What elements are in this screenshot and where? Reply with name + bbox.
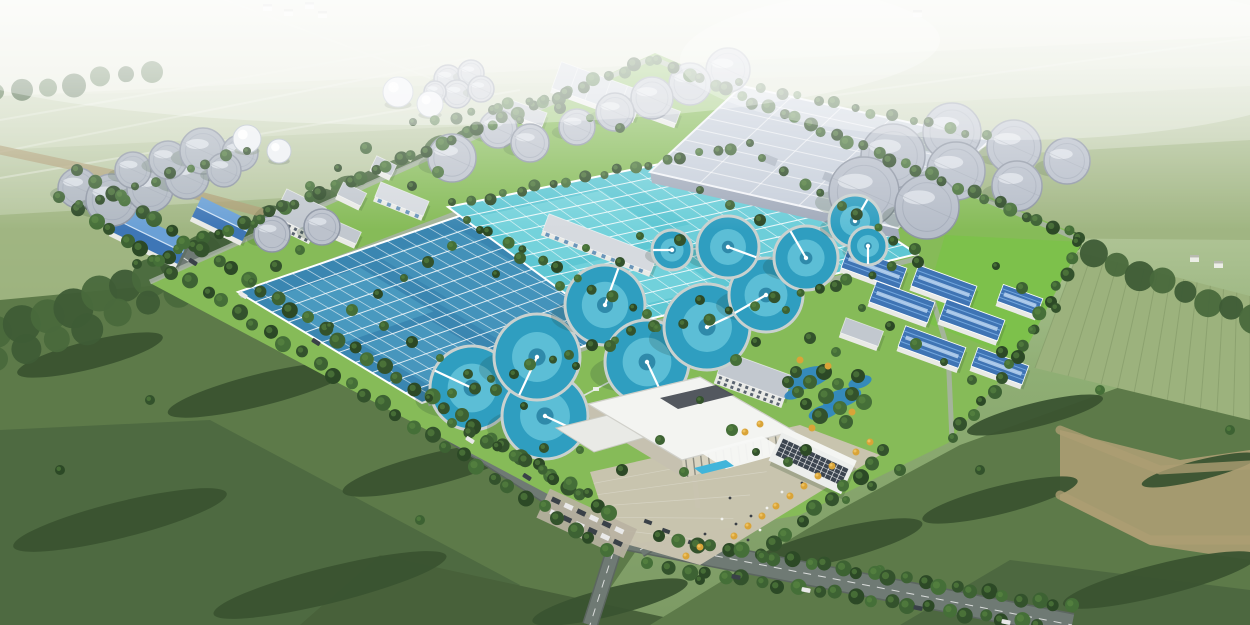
tree-highlight — [993, 263, 997, 267]
tree-highlight — [588, 286, 593, 291]
tree-highlight — [465, 371, 470, 376]
tree-highlight — [351, 343, 356, 348]
yellow-tree-highlight — [816, 474, 819, 477]
tree-highlight — [449, 390, 454, 395]
tree-highlight — [982, 611, 987, 616]
tree-highlight — [870, 273, 874, 277]
tree-highlight — [465, 428, 470, 433]
tree-highlight — [327, 370, 334, 377]
tree-highlight — [570, 525, 577, 532]
person — [747, 539, 750, 542]
tree-highlight — [914, 258, 919, 263]
tree-highlight — [134, 261, 139, 266]
yellow-tree-highlight — [868, 440, 871, 443]
tree-highlight — [575, 276, 579, 280]
tree-highlight — [676, 236, 681, 241]
tree-highlight — [701, 568, 706, 573]
tree-highlight — [459, 449, 465, 455]
tree-highlight — [657, 437, 662, 442]
tree-highlight — [348, 306, 353, 311]
tree-highlight — [409, 423, 415, 429]
tree-highlight — [511, 371, 516, 376]
tree-highlight — [628, 327, 633, 332]
tree-highlight — [858, 396, 865, 403]
tree-highlight — [802, 400, 807, 405]
tree-highlight — [147, 397, 152, 402]
tree-highlight — [379, 360, 386, 367]
tree-highlight — [585, 490, 590, 495]
tree-highlight — [697, 577, 702, 582]
tree-highlight — [573, 363, 577, 367]
tree-highlight — [470, 461, 477, 468]
person — [735, 523, 738, 526]
tree-highlight — [359, 391, 365, 397]
tree-highlight — [272, 262, 277, 267]
tree-highlight — [888, 263, 893, 268]
haze-layer — [0, 0, 1250, 230]
tree-highlight — [1017, 615, 1024, 622]
distant-farm — [1214, 263, 1223, 268]
tree-highlight — [205, 288, 210, 293]
tree-highlight — [839, 481, 844, 486]
tree-highlight — [780, 530, 786, 536]
forest-blob — [1080, 239, 1108, 267]
tree-highlight — [1047, 298, 1052, 303]
tree-highlight — [602, 545, 608, 551]
tree-highlight — [819, 559, 825, 565]
tree-highlight — [793, 581, 800, 588]
tree-highlight — [799, 517, 804, 522]
tree-highlight — [362, 354, 368, 360]
tree-highlight — [732, 356, 737, 361]
tree-highlight — [1034, 308, 1040, 314]
tree-highlight — [752, 303, 757, 308]
tree-highlight — [853, 371, 859, 377]
tree-highlight — [673, 536, 679, 542]
tree-highlight — [184, 275, 191, 282]
tree-highlight — [901, 600, 908, 607]
tree-highlight — [721, 573, 727, 579]
forest-blob — [71, 313, 103, 345]
tree-highlight — [541, 445, 546, 450]
tree-highlight — [520, 246, 524, 250]
tree-highlight — [984, 586, 991, 593]
tree-highlight — [816, 588, 821, 593]
tree-highlight — [327, 323, 331, 327]
tree-highlight — [584, 534, 589, 539]
tree-highlight — [471, 384, 476, 389]
forest-blob — [104, 298, 132, 326]
tree-highlight — [284, 305, 291, 312]
tree-highlight — [834, 380, 839, 385]
tree-highlight — [408, 338, 413, 343]
tree-highlight — [608, 292, 613, 297]
tree-highlight — [851, 591, 858, 598]
tree-highlight — [808, 560, 813, 565]
tree-highlight — [617, 259, 622, 264]
tree-highlight — [814, 410, 821, 417]
tree-highlight — [552, 513, 558, 519]
yellow-tree-highlight — [698, 545, 701, 548]
tree-highlight — [954, 582, 959, 587]
tree-highlight — [216, 295, 222, 301]
tree-highlight — [921, 577, 927, 583]
clarifier-hub — [764, 293, 768, 297]
yellow-tree-highlight — [684, 554, 687, 557]
tree-highlight — [637, 233, 641, 237]
tree-highlight — [575, 490, 580, 495]
tree-highlight — [996, 615, 1002, 621]
tree-highlight — [706, 541, 711, 546]
clarifier-hub — [543, 414, 547, 418]
tree-highlight — [654, 325, 658, 329]
tree-highlight — [249, 279, 253, 283]
tree-highlight — [457, 410, 463, 416]
tree-highlight — [1018, 284, 1023, 289]
tree-highlight — [753, 339, 758, 344]
tree-highlight — [1016, 596, 1022, 602]
tree-highlight — [583, 245, 587, 249]
tree-highlight — [1227, 427, 1232, 432]
tree-highlight — [933, 581, 940, 588]
tree-highlight — [806, 334, 811, 339]
tree-highlight — [277, 339, 284, 346]
tree-highlight — [1052, 282, 1057, 287]
tree-highlight — [482, 437, 488, 443]
tree-highlight — [297, 247, 302, 252]
tree-highlight — [787, 553, 794, 560]
tree-highlight — [977, 467, 982, 472]
yellow-tree — [825, 363, 832, 370]
tree-highlight — [417, 517, 422, 522]
tree-highlight — [784, 378, 789, 383]
tree-highlight — [1063, 270, 1069, 276]
tree-highlight — [520, 493, 527, 500]
tree-highlight — [535, 460, 540, 465]
tree-highlight — [798, 290, 802, 294]
tree-highlight — [504, 239, 509, 244]
yellow-tree-highlight — [774, 504, 777, 507]
tree-highlight — [724, 545, 730, 551]
tree-highlight — [681, 469, 686, 474]
tree-highlight — [216, 257, 221, 262]
tree-highlight — [998, 592, 1003, 597]
yellow-tree-highlight — [802, 484, 805, 487]
yellow-tree — [809, 425, 816, 432]
clarifier-hub — [670, 248, 674, 252]
tree-highlight — [852, 569, 857, 574]
tree-highlight — [664, 563, 670, 569]
tree-highlight — [437, 355, 441, 359]
tree-highlight — [401, 275, 405, 279]
tree-highlight — [870, 568, 876, 574]
tree-highlight — [859, 305, 863, 309]
tree-highlight — [705, 315, 710, 320]
yellow-tree-highlight — [830, 464, 833, 467]
tree-highlight — [1006, 361, 1011, 366]
tree-highlight — [888, 596, 894, 602]
tree-highlight — [557, 283, 562, 288]
tree-highlight — [426, 395, 430, 399]
tree-highlight — [896, 466, 901, 471]
tree-highlight — [759, 553, 764, 558]
tree-highlight — [1097, 387, 1102, 392]
aerial-render: Aerial 3D rendering of a large wastewate… — [0, 0, 1250, 625]
person — [750, 515, 753, 518]
tree-highlight — [196, 244, 203, 251]
tree-highlight — [577, 447, 581, 451]
tree-highlight — [424, 258, 429, 263]
tree-highlight — [134, 243, 141, 250]
tree-highlight — [155, 257, 160, 262]
forest-blob — [1194, 289, 1222, 317]
tree-highlight — [449, 243, 454, 248]
tree-highlight — [332, 335, 339, 342]
tree-highlight — [770, 293, 775, 298]
tree-highlight — [644, 311, 649, 316]
tree-highlight — [540, 257, 545, 262]
treatment-plant-rendering: Aerial 3D rendering of a large wastewate… — [0, 0, 1250, 625]
tree-highlight — [830, 587, 836, 593]
tree-highlight — [842, 275, 847, 280]
tree-highlight — [492, 386, 497, 391]
tree-highlight — [855, 472, 862, 479]
tree-highlight — [785, 459, 790, 464]
tree-highlight — [941, 359, 945, 363]
tree-highlight — [768, 554, 774, 560]
tree-highlight — [630, 305, 634, 309]
tree-highlight — [216, 231, 221, 236]
tree-highlight — [516, 254, 521, 259]
tree-highlight — [511, 452, 516, 457]
yellow-tree-highlight — [760, 514, 763, 517]
tree-highlight — [298, 347, 303, 352]
tree-highlight — [391, 411, 396, 416]
tree-highlight — [226, 263, 232, 269]
yellow-tree-highlight — [732, 534, 735, 537]
tree-highlight — [256, 287, 261, 292]
forest-blob — [1150, 268, 1176, 294]
person — [759, 529, 762, 532]
tree-highlight — [1029, 327, 1033, 331]
tree-highlight — [1019, 342, 1024, 347]
tree-highlight — [179, 238, 185, 244]
person — [704, 533, 707, 536]
forest-blob — [1174, 281, 1196, 303]
tree-highlight — [392, 374, 397, 379]
clarifier-hub — [726, 245, 730, 249]
tree-highlight — [680, 320, 685, 325]
person — [781, 491, 784, 494]
tree-highlight — [553, 263, 558, 268]
tree-highlight — [970, 411, 975, 416]
tree-highlight — [316, 359, 322, 365]
tree-highlight — [838, 563, 845, 570]
tree-highlight — [618, 466, 623, 471]
tree-highlight — [266, 327, 272, 333]
tree-highlight — [924, 602, 929, 607]
tree-highlight — [526, 360, 531, 365]
tree-highlight — [833, 349, 838, 354]
tree-highlight — [566, 351, 571, 356]
tree-highlight — [832, 282, 837, 287]
tree-highlight — [847, 389, 853, 395]
tree-highlight — [783, 307, 787, 311]
yellow-tree-highlight — [854, 450, 857, 453]
tree-highlight — [969, 377, 974, 382]
tree-highlight — [867, 459, 873, 465]
tree-highlight — [726, 308, 730, 312]
tree-highlight — [375, 291, 380, 296]
tree-highlight — [606, 342, 611, 347]
tree-highlight — [879, 446, 884, 451]
tree-highlight — [539, 466, 544, 471]
tree-highlight — [541, 502, 546, 507]
tree-highlight — [643, 559, 648, 564]
tree-highlight — [753, 449, 757, 453]
tree-highlight — [772, 582, 778, 588]
yellow-tree-highlight — [743, 430, 746, 433]
tree-highlight — [550, 357, 554, 361]
tree-highlight — [794, 388, 799, 393]
tree-highlight — [887, 323, 892, 328]
tree-highlight — [816, 285, 821, 290]
tree-highlight — [965, 587, 971, 593]
tree-highlight — [348, 379, 353, 384]
tree-highlight — [377, 397, 384, 404]
tree-highlight — [603, 507, 610, 514]
tree-highlight — [502, 481, 508, 487]
tree-highlight — [381, 323, 386, 328]
tree-highlight — [248, 320, 253, 325]
tree-highlight — [520, 455, 526, 461]
tree-highlight — [950, 435, 955, 440]
tree-highlight — [998, 348, 1003, 353]
yellow-tree-highlight — [746, 524, 749, 527]
tree-highlight — [685, 567, 692, 574]
tree-highlight — [805, 377, 811, 383]
tree-highlight — [841, 417, 847, 423]
tree-highlight — [827, 494, 833, 500]
tree-highlight — [655, 532, 660, 537]
tree-highlight — [998, 374, 1003, 379]
tree-highlight — [164, 253, 170, 259]
tree-highlight — [410, 385, 416, 391]
tree-highlight — [1035, 595, 1042, 602]
tree-highlight — [449, 420, 454, 425]
person — [729, 497, 732, 500]
tree-highlight — [57, 467, 62, 472]
tree-highlight — [1013, 352, 1019, 358]
tree-highlight — [493, 271, 497, 275]
junction-box — [593, 387, 599, 391]
forest-blob — [11, 334, 41, 364]
tree-highlight — [736, 544, 743, 551]
yellow-tree-highlight — [758, 422, 761, 425]
tree-highlight — [1074, 239, 1079, 244]
tree-highlight — [234, 307, 241, 314]
tree-highlight — [945, 606, 951, 612]
tree-highlight — [843, 497, 847, 501]
tree-highlight — [1068, 254, 1073, 259]
tree-highlight — [867, 597, 872, 602]
tree-highlight — [274, 294, 280, 300]
tree-highlight — [835, 403, 841, 409]
tree-highlight — [758, 578, 763, 583]
clarifier-hub — [535, 355, 539, 359]
tree-highlight — [912, 340, 917, 345]
tree-highlight — [955, 419, 961, 425]
tree-highlight — [491, 475, 496, 480]
tree-highlight — [166, 268, 172, 274]
tree-highlight — [440, 404, 445, 409]
tree-highlight — [1067, 600, 1073, 606]
tree-highlight — [808, 502, 815, 509]
tree-highlight — [959, 610, 966, 617]
tree-highlight — [911, 245, 916, 250]
forest-blob — [44, 326, 70, 352]
tree-highlight — [882, 572, 889, 579]
yellow-tree — [849, 409, 856, 416]
tree-highlight — [488, 376, 492, 380]
tree-highlight — [123, 236, 129, 242]
tree-highlight — [549, 475, 554, 480]
tree-highlight — [818, 366, 825, 373]
distant-farm-roof — [1214, 261, 1223, 264]
tree-highlight — [978, 398, 983, 403]
clarifier-hub — [866, 244, 870, 248]
yellow-tree — [797, 357, 804, 364]
person — [721, 518, 724, 521]
yellow-tree-highlight — [788, 494, 791, 497]
tree-highlight — [890, 237, 895, 242]
tree-highlight — [1048, 601, 1053, 606]
tree-highlight — [903, 573, 908, 578]
tree-highlight — [792, 368, 797, 373]
forest-blob — [1125, 261, 1155, 291]
tree-highlight — [588, 341, 593, 346]
tree-highlight — [304, 313, 309, 318]
tree-highlight — [441, 443, 446, 448]
clarifier-hub — [645, 360, 649, 364]
distant-farm — [1190, 257, 1199, 262]
tree-highlight — [820, 390, 827, 397]
tree-highlight — [697, 397, 701, 401]
tree-highlight — [198, 233, 204, 239]
tree-highlight — [697, 297, 702, 302]
forest-blob — [136, 291, 160, 315]
tree-highlight — [728, 426, 733, 431]
tree-highlight — [990, 387, 996, 393]
tree-highlight — [1053, 305, 1058, 310]
tree-highlight — [768, 538, 775, 545]
person — [766, 507, 769, 510]
tree-highlight — [521, 403, 525, 407]
tree-highlight — [566, 479, 572, 485]
tree-highlight — [427, 429, 434, 436]
clarifier-hub — [804, 256, 808, 260]
tree-highlight — [869, 483, 874, 488]
tree-highlight — [593, 501, 599, 507]
tree-highlight — [802, 446, 807, 451]
clarifier-hub — [603, 303, 607, 307]
distant-farm-roof — [1190, 255, 1199, 258]
tree-highlight — [494, 443, 499, 448]
